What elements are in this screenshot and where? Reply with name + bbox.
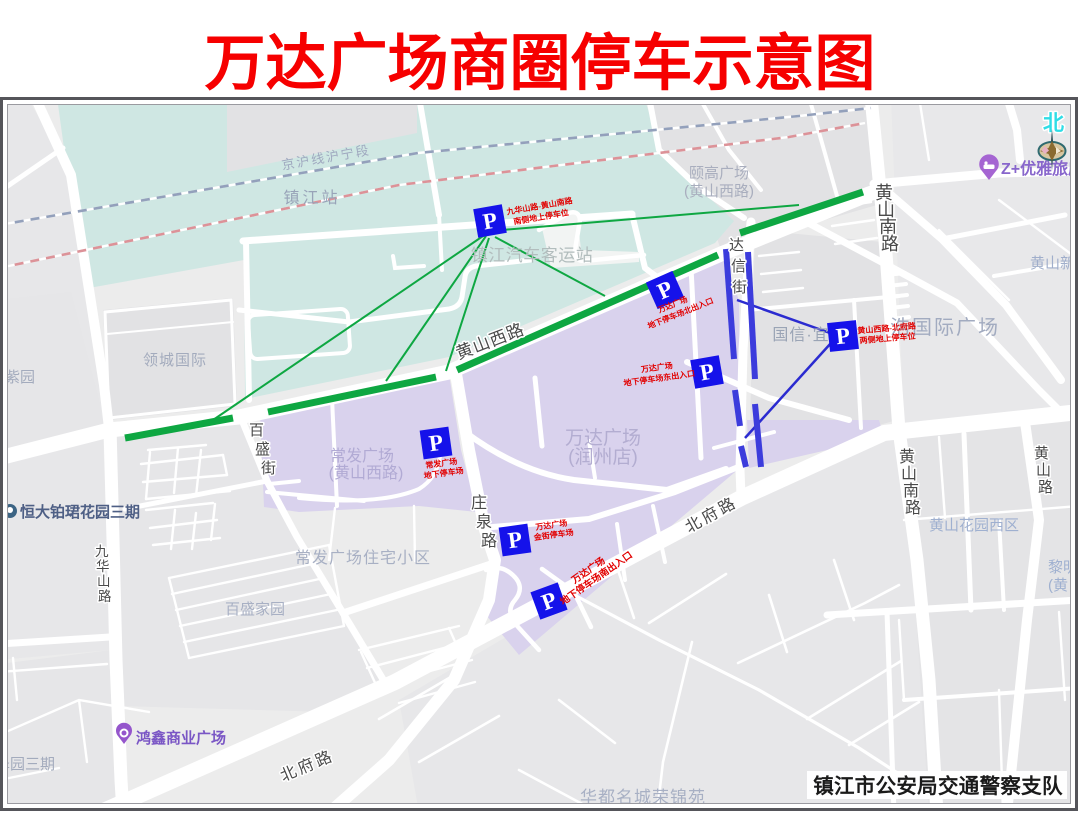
svg-text:镇江汽车客运站: 镇江汽车客运站 (471, 246, 594, 265)
svg-text:百盛家园: 百盛家园 (225, 601, 285, 618)
svg-text:泽园三期: 泽园三期 (3, 756, 55, 773)
svg-text:Z+优雅旅店: Z+优雅旅店 (1001, 159, 1075, 178)
svg-text:P: P (835, 323, 852, 349)
svg-text:领城国际: 领城国际 (143, 352, 207, 369)
svg-text:鸿鑫商业广场: 鸿鑫商业广场 (136, 729, 226, 747)
svg-text:(黄山西路): (黄山西路) (329, 464, 404, 482)
svg-text:(黄: (黄 (1048, 577, 1068, 594)
svg-text:北: 北 (1043, 112, 1064, 135)
svg-text:镇江市公安局交通警察支队: 镇江市公安局交通警察支队 (813, 774, 1063, 798)
svg-text:恒大铂珺花园三期: 恒大铂珺花园三期 (20, 503, 140, 521)
svg-text:黄山花园西区: 黄山花园西区 (929, 517, 1019, 534)
svg-text:颐高广场: 颐高广场 (689, 165, 749, 182)
svg-text:万达广场: 万达广场 (565, 427, 641, 449)
svg-text:(润州店): (润州店) (568, 446, 638, 468)
svg-text:常发广场: 常发广场 (330, 447, 394, 465)
svg-text:常发广场住宅小区: 常发广场住宅小区 (295, 549, 431, 567)
svg-text:国信·宜: 国信·宜 (772, 326, 829, 344)
svg-text:黄山新村: 黄山新村 (1030, 255, 1075, 272)
svg-text:(黄山西路): (黄山西路) (684, 183, 754, 200)
svg-text:镇江站: 镇江站 (283, 189, 340, 207)
svg-text:紫园: 紫园 (5, 369, 35, 386)
